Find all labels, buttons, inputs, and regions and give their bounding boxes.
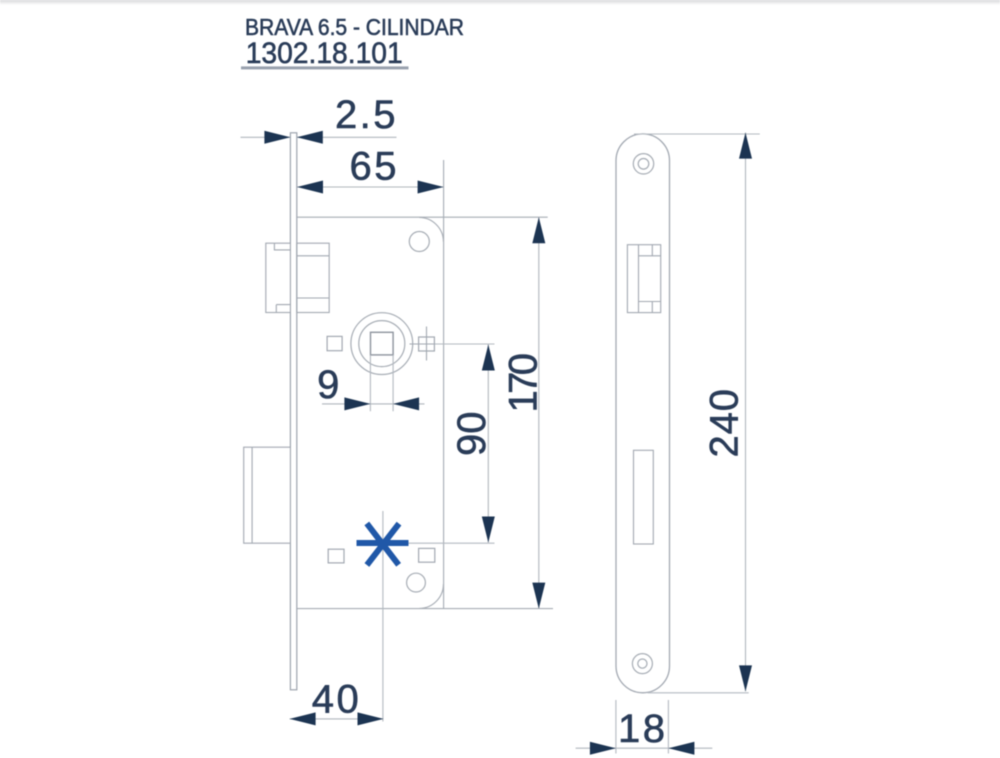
- svg-text:18: 18: [618, 707, 668, 751]
- svg-text:65: 65: [350, 145, 400, 189]
- svg-text:40: 40: [312, 678, 362, 722]
- svg-text:240: 240: [703, 387, 747, 458]
- svg-text:90: 90: [450, 409, 494, 456]
- svg-text:1302.18.101: 1302.18.101: [246, 37, 403, 70]
- svg-text:2.5: 2.5: [335, 93, 398, 137]
- svg-text:170: 170: [502, 351, 546, 413]
- svg-text:BRAVA 6.5 - CILINDAR: BRAVA 6.5 - CILINDAR: [245, 14, 464, 40]
- svg-text:9: 9: [317, 363, 342, 407]
